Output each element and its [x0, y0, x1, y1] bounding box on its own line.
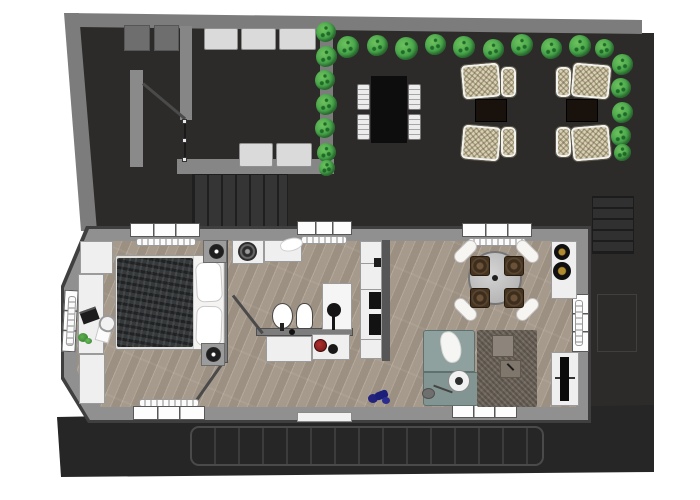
tv [560, 357, 569, 401]
garden-bench [276, 143, 312, 167]
bedroom-bottom-window [133, 406, 205, 420]
bed-pillow [195, 261, 223, 302]
kitchen-appliance [374, 258, 381, 267]
nightstand-lamp [206, 347, 221, 362]
deck-slat-frame [190, 426, 544, 466]
vanity-cabinet [266, 336, 312, 362]
coffee-table [492, 335, 514, 357]
shower-riser [332, 315, 335, 330]
outdoor-dining-chair [408, 84, 421, 110]
wicker-lounge-chair [501, 67, 516, 97]
terrace-right-stairs [592, 196, 634, 254]
wicker-lounge-chair [556, 127, 571, 157]
dining-chair-seat [470, 256, 490, 276]
dining-chair-seat [504, 256, 524, 276]
garden-stairs [192, 174, 288, 228]
lounge-side-table [475, 99, 507, 122]
hedge-bush [367, 35, 388, 56]
wicker-lounge-chair [571, 62, 612, 99]
floor-lamp-base [422, 388, 435, 399]
bedroom-top-window [130, 223, 200, 237]
dining-chair-seat [470, 288, 490, 308]
outdoor-dining-chair [408, 114, 421, 140]
hedge-bush [395, 37, 418, 60]
hedge-bush [425, 34, 446, 55]
floor-plan-rendering [0, 0, 700, 500]
wicker-lounge-chair [571, 124, 612, 161]
bed-duvet [117, 258, 193, 347]
black-knob [328, 344, 338, 354]
hedge-bush [317, 143, 336, 162]
shower-head [327, 303, 341, 317]
dining-chair-seat [504, 288, 524, 308]
floor-lamp [449, 371, 469, 391]
hedge-bush [595, 39, 614, 58]
dining-table-center [492, 275, 498, 281]
french-door-radiator [575, 300, 583, 346]
hedge-bush [316, 94, 337, 115]
garden-bench [279, 28, 316, 50]
garden-bench [239, 143, 273, 167]
washing-machine-drum [238, 242, 257, 261]
red-knob [314, 339, 327, 352]
blue-object [382, 397, 390, 404]
gate-post [182, 157, 187, 162]
planter [154, 25, 179, 51]
kitchen-appliance [369, 314, 381, 335]
wicker-lounge-chair [501, 127, 516, 157]
garden-partition-wall [180, 26, 192, 120]
burner [554, 244, 570, 260]
gate-post [182, 119, 187, 124]
kitchen-wall [382, 240, 390, 361]
nightstand-lamp [209, 244, 224, 259]
planter [124, 25, 150, 51]
bathroom-top-radiator [301, 236, 347, 244]
potted-plant [85, 338, 92, 344]
washbasin-faucet [280, 323, 284, 331]
living-top-window [462, 223, 532, 237]
bedroom-top-radiator [136, 238, 196, 246]
entrance-threshold [297, 412, 352, 422]
outdoor-dining-chair [357, 84, 370, 110]
hedge-bush [614, 144, 631, 161]
gate-post [182, 138, 187, 143]
hedge-bush [612, 102, 633, 123]
hedge-bush [541, 38, 562, 59]
outdoor-dining-table [371, 76, 407, 143]
bathroom-top-window [297, 221, 352, 235]
wicker-lounge-chair [461, 124, 502, 161]
wardrobe [79, 354, 105, 404]
lounge-side-table [566, 99, 598, 122]
hedge-bush [483, 39, 504, 60]
wardrobe [80, 241, 113, 274]
hedge-bush [612, 54, 633, 75]
terrace-right-outline [597, 294, 637, 352]
garden-bench [204, 28, 238, 50]
kitchen-appliance [369, 292, 381, 309]
toilet [296, 303, 313, 329]
bed-pillow [195, 306, 222, 347]
hedge-bush [316, 46, 337, 67]
wicker-lounge-chair [556, 67, 571, 97]
garden-bench [241, 28, 276, 50]
wicker-lounge-chair [461, 62, 502, 99]
burner [553, 262, 571, 280]
outdoor-dining-chair [357, 114, 370, 140]
bath-accessory-dot [289, 329, 295, 335]
